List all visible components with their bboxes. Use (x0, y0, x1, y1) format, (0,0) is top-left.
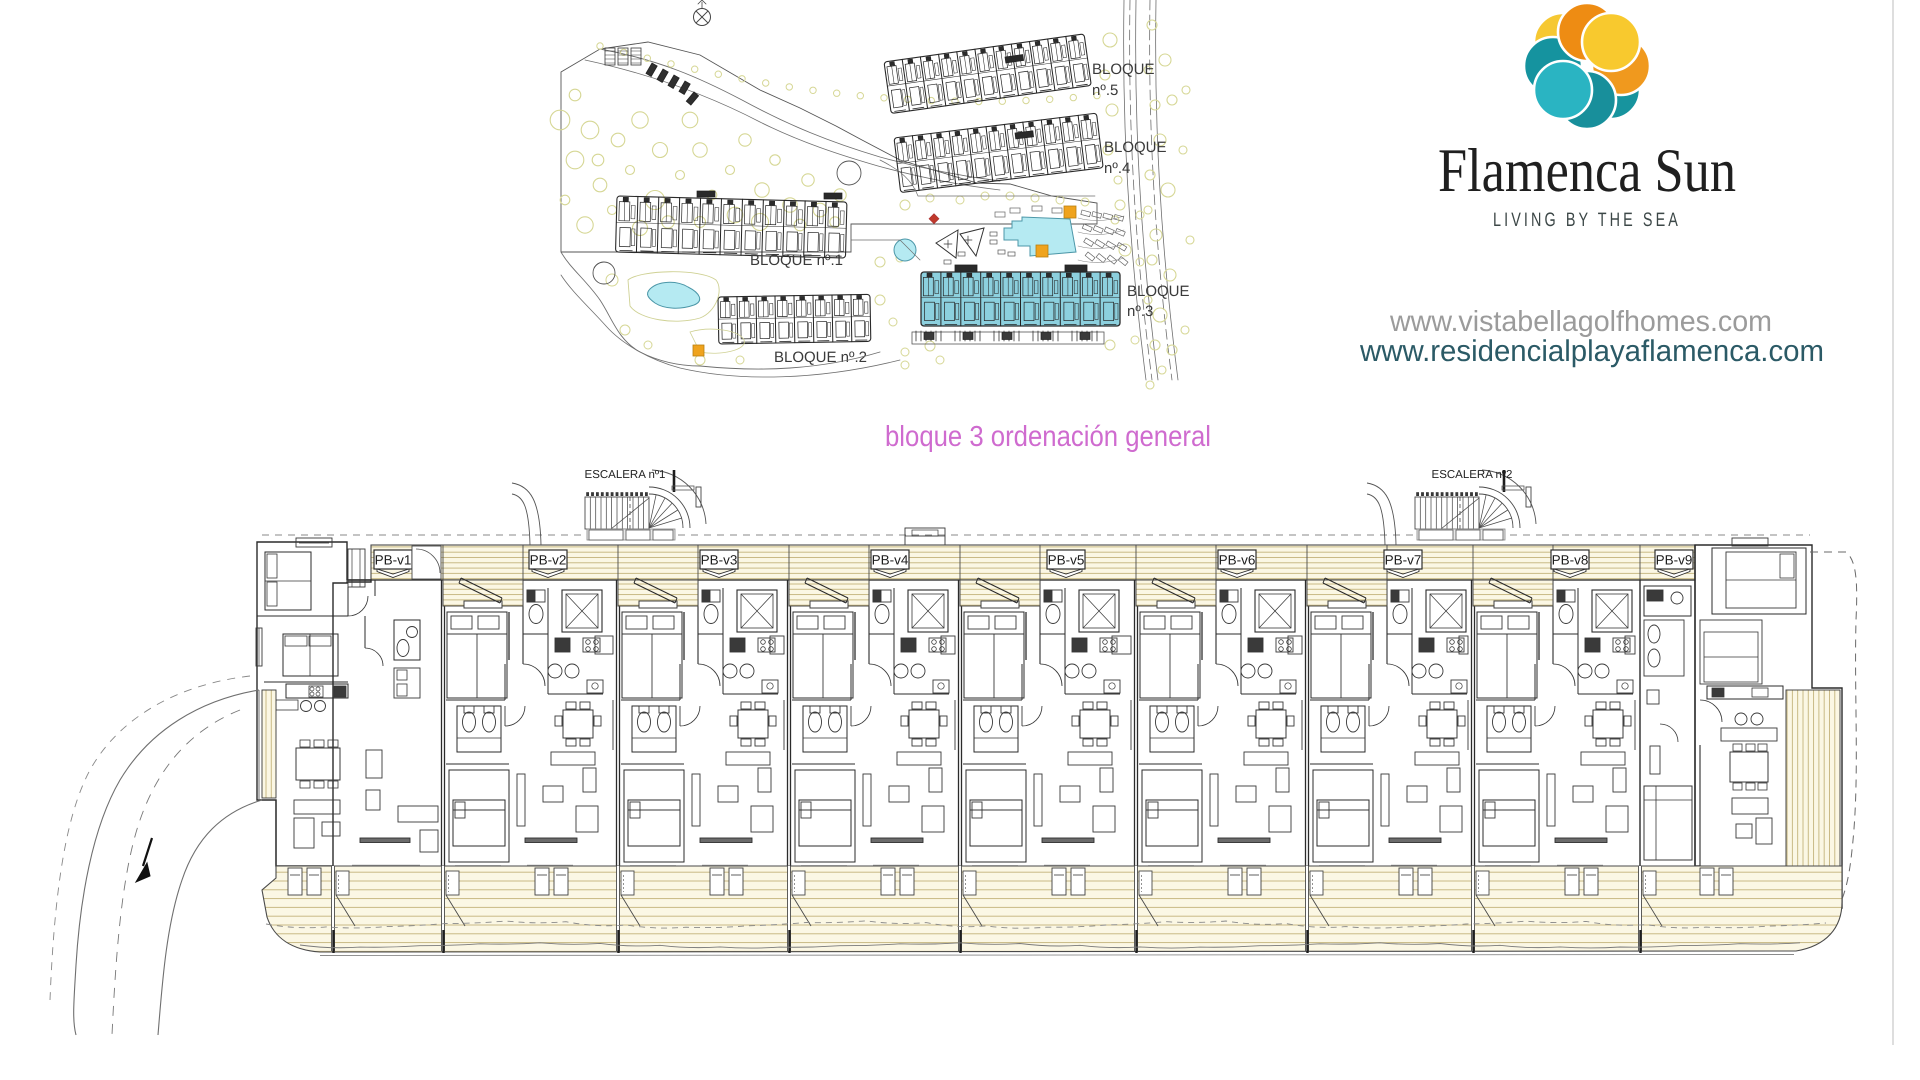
svg-text:bloque 3 ordenación general: bloque 3 ordenación general (885, 421, 1211, 453)
svg-text:PB-v9: PB-v9 (1656, 553, 1693, 568)
svg-text:www.residencialplayaflamenca.c: www.residencialplayaflamenca.com (1359, 335, 1824, 368)
svg-text:PB-v2: PB-v2 (530, 553, 567, 568)
svg-text:PB-v7: PB-v7 (1385, 553, 1422, 568)
svg-text:nº.4: nº.4 (1104, 160, 1130, 177)
svg-text:nº.3: nº.3 (1127, 303, 1153, 320)
svg-text:BLOQUE nº.2: BLOQUE nº.2 (774, 349, 867, 366)
svg-text:BLOQUE: BLOQUE (1127, 283, 1190, 300)
svg-text:BLOQUE nº.1: BLOQUE nº.1 (750, 252, 843, 269)
svg-text:PB-v3: PB-v3 (701, 553, 738, 568)
svg-text:www.vistabellagolfhomes.com: www.vistabellagolfhomes.com (1389, 306, 1772, 338)
svg-text:ESCALERA nº1: ESCALERA nº1 (585, 469, 666, 481)
svg-text:ESCALERA nº2: ESCALERA nº2 (1432, 469, 1513, 481)
svg-text:PB-v8: PB-v8 (1552, 553, 1589, 568)
svg-text:BLOQUE: BLOQUE (1104, 139, 1167, 156)
svg-text:BLOQUE: BLOQUE (1092, 61, 1155, 78)
svg-text:PB-v1: PB-v1 (375, 553, 412, 568)
svg-text:PB-v6: PB-v6 (1219, 553, 1256, 568)
svg-text:LIVING BY THE SEA: LIVING BY THE SEA (1493, 209, 1681, 231)
svg-text:PB-v4: PB-v4 (872, 553, 909, 568)
svg-text:nº.5: nº.5 (1092, 82, 1118, 99)
svg-text:Flamenca Sun: Flamenca Sun (1438, 137, 1736, 205)
svg-text:PB-v5: PB-v5 (1048, 553, 1085, 568)
